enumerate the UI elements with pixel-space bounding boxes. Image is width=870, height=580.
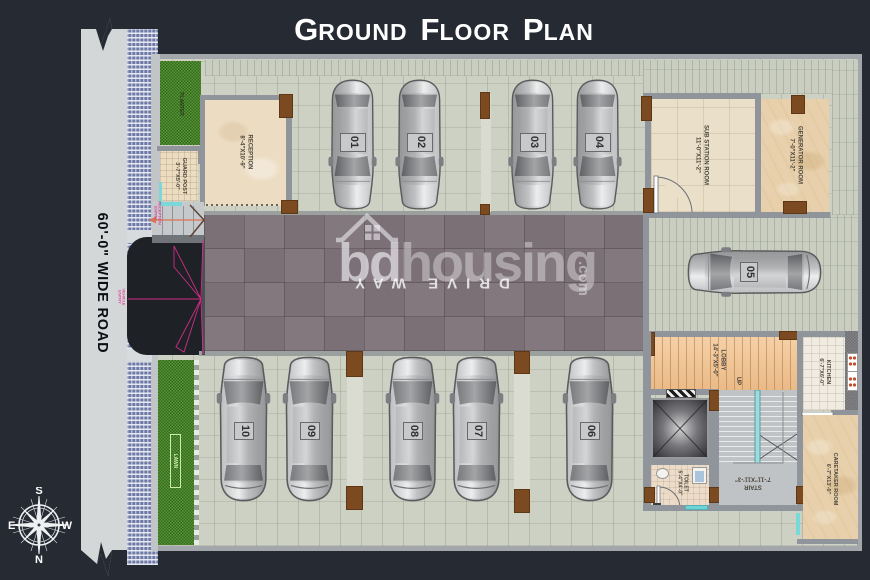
- svg-text:E: E: [8, 520, 15, 532]
- svg-text:S: S: [35, 487, 42, 497]
- svg-text:W: W: [62, 520, 73, 532]
- svg-text:N: N: [35, 554, 43, 563]
